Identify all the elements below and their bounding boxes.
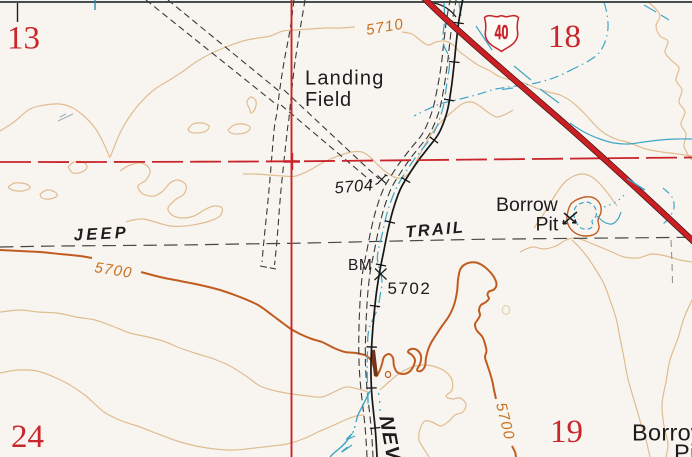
- svg-text:19: 19: [550, 414, 583, 450]
- svg-text:JEEP: JEEP: [73, 224, 129, 245]
- svg-text:5704: 5704: [334, 176, 375, 197]
- svg-text:13: 13: [7, 21, 40, 57]
- svg-text:Landing: Landing: [305, 68, 385, 90]
- svg-text:Field: Field: [305, 89, 352, 111]
- svg-text:40: 40: [495, 21, 509, 44]
- svg-text:Pit: Pit: [674, 440, 692, 457]
- svg-text:Pit: Pit: [536, 214, 559, 236]
- svg-text:5702: 5702: [388, 279, 432, 298]
- svg-text:BM: BM: [348, 257, 372, 274]
- svg-text:18: 18: [548, 19, 581, 55]
- svg-text:24: 24: [11, 419, 44, 455]
